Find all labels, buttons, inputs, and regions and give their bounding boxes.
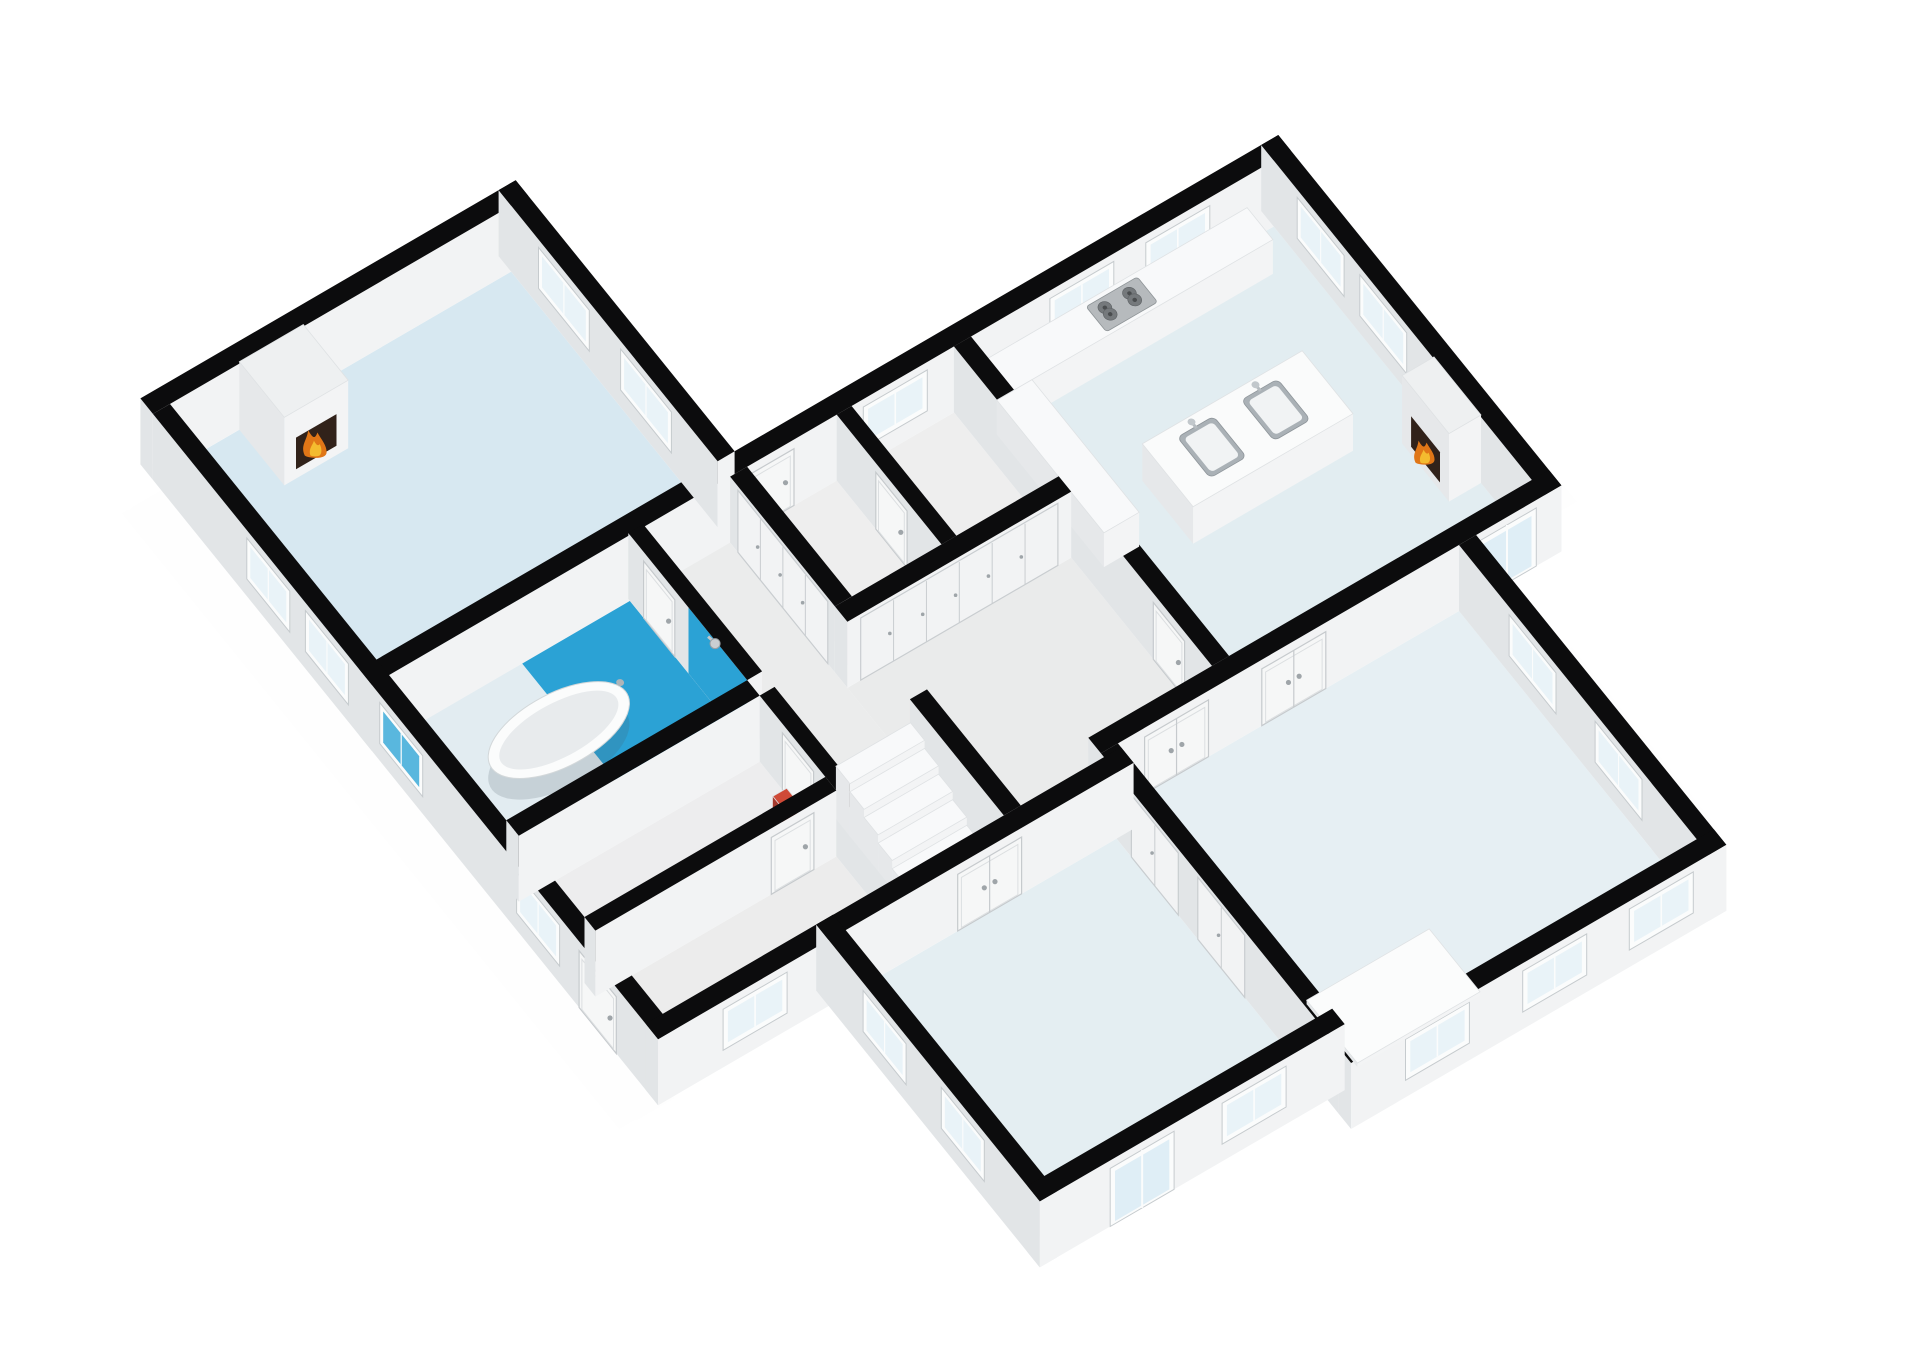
shower-head-disc [710, 639, 720, 649]
window-mullion [1253, 1089, 1255, 1121]
floor-plan-3d-render [0, 0, 1920, 1358]
closet-handle [778, 573, 782, 577]
window-mullion [268, 569, 269, 602]
wall-face [585, 917, 596, 997]
closet-handle [756, 545, 760, 549]
door-handle [982, 885, 987, 890]
door-handle [803, 844, 808, 849]
window-mullion [563, 283, 564, 315]
window-mullion [1320, 230, 1321, 262]
window-mullion [1661, 895, 1663, 927]
closet-handle [801, 601, 805, 605]
door-handle [1169, 748, 1174, 753]
door-handle [666, 619, 671, 624]
window-mullion [1437, 1025, 1439, 1057]
window-mullion [962, 1118, 963, 1150]
window-mullion [1554, 957, 1556, 989]
closet-handle [1020, 555, 1024, 559]
door-handle [992, 879, 997, 884]
closet-handle [921, 613, 925, 617]
closet-handle [1150, 851, 1154, 855]
closet-handle [954, 593, 958, 597]
window-mullion [326, 641, 327, 674]
door-handle [1297, 674, 1302, 679]
door-handle [783, 480, 788, 485]
door-handle [1176, 660, 1181, 665]
window-mullion [895, 393, 897, 425]
door-handle [1286, 680, 1291, 685]
window-mullion [884, 1021, 885, 1053]
window-mullion [1618, 754, 1619, 786]
window-mullion [1532, 648, 1533, 680]
door-handle [607, 1015, 612, 1020]
window-mullion [538, 903, 539, 935]
window-mullion [1383, 308, 1384, 340]
window-mullion [645, 384, 646, 417]
floor-plan-viewport [0, 0, 1920, 1358]
closet-handle [1217, 933, 1221, 937]
window-mullion [401, 733, 402, 765]
window-mullion [754, 995, 756, 1027]
closet-handle [987, 574, 991, 578]
closet-handle [888, 632, 892, 636]
door-handle [898, 530, 903, 535]
door-handle [1179, 742, 1184, 747]
